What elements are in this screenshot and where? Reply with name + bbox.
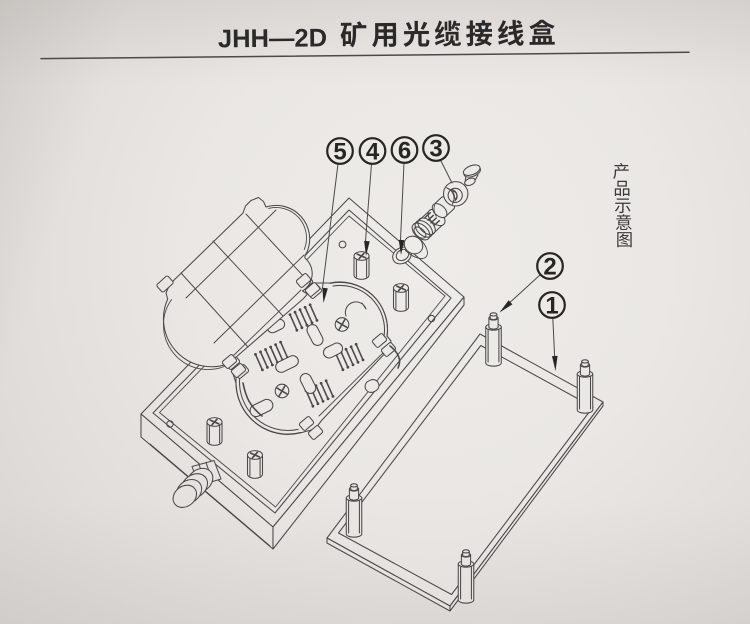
svg-text:1: 1 [545, 293, 558, 320]
svg-text:3: 3 [429, 136, 442, 163]
svg-text:JHH—2D: JHH—2D [218, 24, 327, 53]
svg-text:6: 6 [398, 138, 411, 165]
svg-text:5: 5 [333, 139, 346, 166]
svg-text:2: 2 [543, 254, 556, 281]
svg-text:4: 4 [366, 139, 380, 166]
